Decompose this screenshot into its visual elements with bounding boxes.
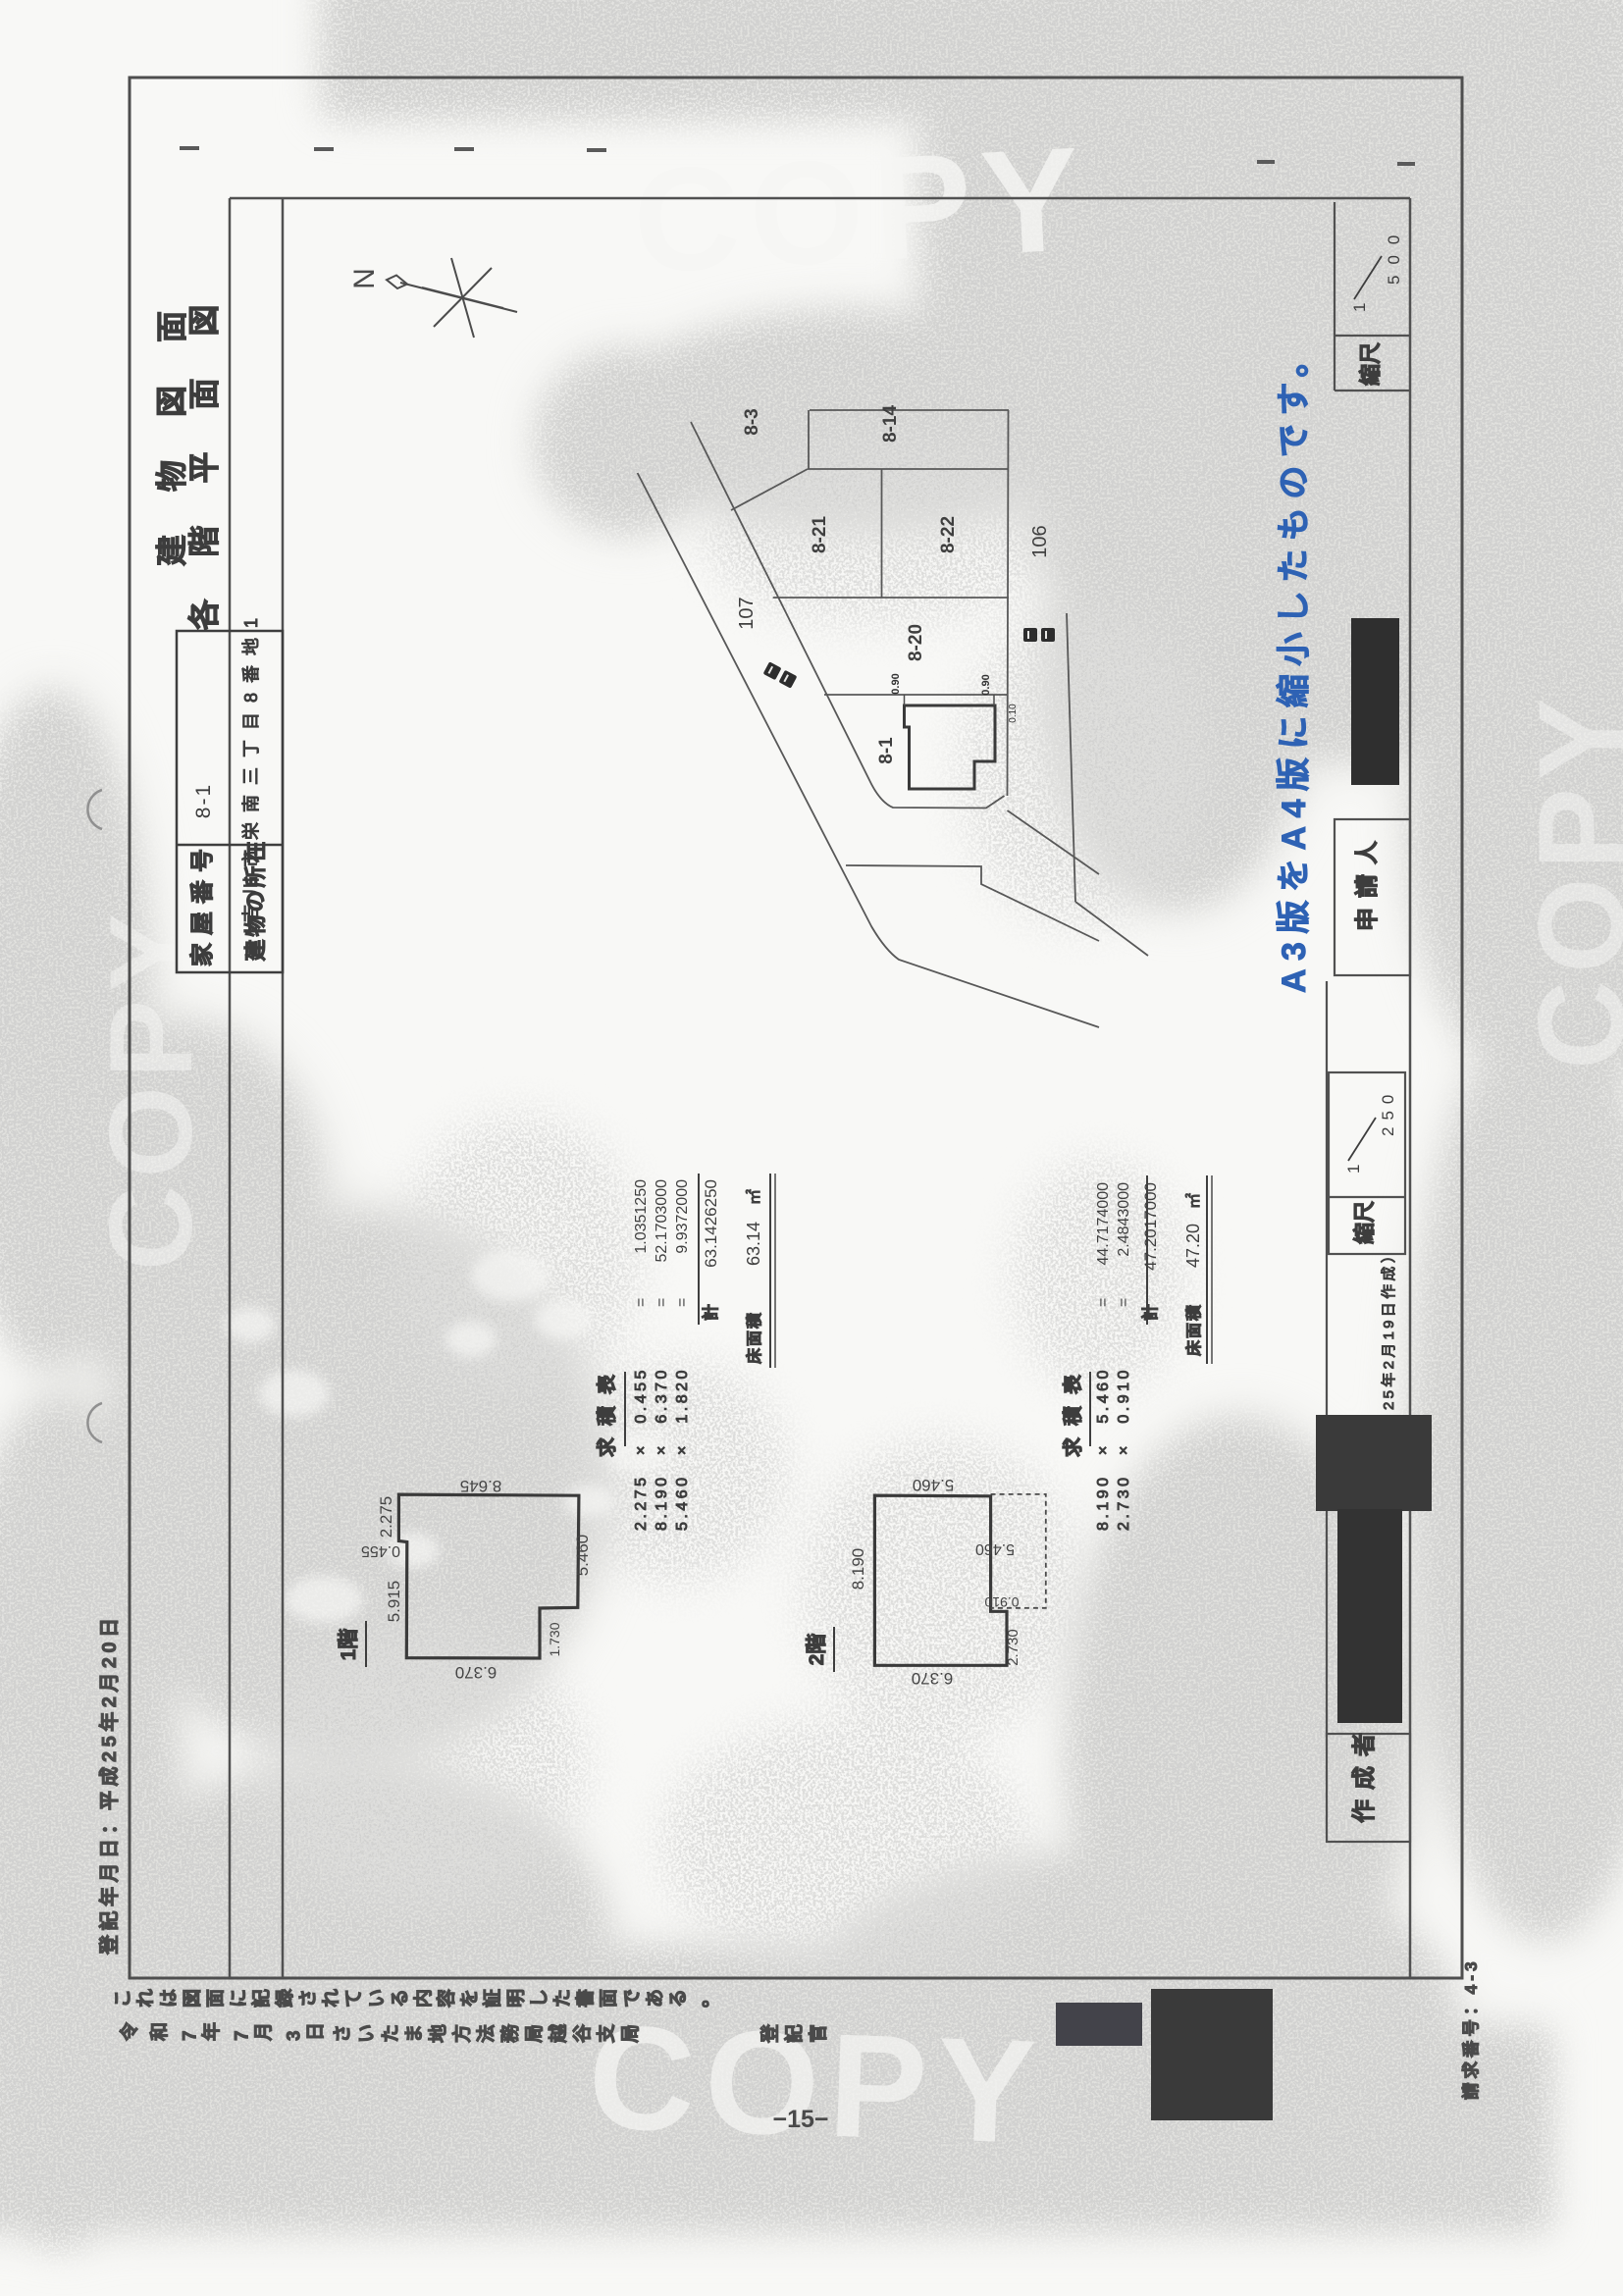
svg-text:2階: 2階 <box>806 1634 828 1666</box>
svg-text:0.90: 0.90 <box>980 674 992 695</box>
svg-text:47.2017000: 47.2017000 <box>1141 1182 1160 1271</box>
svg-text:52.1703000: 52.1703000 <box>654 1179 670 1263</box>
svg-text:−15−: −15− <box>772 2106 828 2133</box>
svg-text:8-21: 8-21 <box>810 516 830 553</box>
svg-text:106: 106 <box>1029 525 1051 557</box>
svg-text:登記官: 登記官 <box>759 2018 829 2044</box>
svg-text:N: N <box>348 268 381 289</box>
svg-text:㎡: ㎡ <box>746 1189 763 1205</box>
svg-text:9.9372000: 9.9372000 <box>674 1179 691 1254</box>
svg-text:8-3: 8-3 <box>742 408 762 435</box>
svg-text:5.460 × 1.820: 5.460 × 1.820 <box>674 1367 691 1531</box>
svg-text:吉川市栄南三丁目8番地1: 吉川市栄南三丁目8番地1 <box>241 608 261 922</box>
svg-text:求積表: 求積表 <box>595 1363 618 1457</box>
svg-text:2.275 × 0.455: 2.275 × 0.455 <box>633 1367 650 1531</box>
svg-text:作成者: 作成者 <box>1350 1723 1378 1823</box>
svg-text:1.730: 1.730 <box>547 1622 562 1656</box>
svg-text:47.20: 47.20 <box>1183 1224 1203 1268</box>
svg-text:家屋番号: 家屋番号 <box>188 841 216 966</box>
svg-text:求積表: 求積表 <box>1061 1363 1084 1457</box>
svg-text:107: 107 <box>736 597 758 629</box>
svg-text:申請人: 申請人 <box>1353 831 1381 931</box>
svg-text:=: = <box>1116 1298 1132 1307</box>
svg-text:=: = <box>1095 1298 1112 1307</box>
svg-text:1階: 1階 <box>338 1629 360 1661</box>
svg-text:建物図面: 建物図面 <box>154 268 189 566</box>
svg-text:63.14: 63.14 <box>744 1222 763 1266</box>
svg-text:床面積: 床面積 <box>1184 1303 1203 1356</box>
svg-text:8.190 × 5.460: 8.190 × 5.460 <box>1095 1367 1112 1531</box>
svg-text:0.10: 0.10 <box>1008 704 1019 723</box>
svg-text:500: 500 <box>1385 225 1403 285</box>
svg-text:6.370: 6.370 <box>912 1669 954 1688</box>
svg-text:請求番号：4-3: 請求番号：4-3 <box>1461 1957 1481 2100</box>
svg-text:各階平面図: 各階平面図 <box>186 262 222 630</box>
svg-text:㎡: ㎡ <box>1185 1193 1203 1209</box>
svg-text:1: 1 <box>1344 1165 1363 1174</box>
svg-text:0.910: 0.910 <box>984 1594 1019 1610</box>
svg-text:COPY: COPY <box>629 115 1093 303</box>
svg-text:44.7174000: 44.7174000 <box>1095 1182 1112 1266</box>
svg-text:=: = <box>633 1298 650 1307</box>
svg-text:5.915: 5.915 <box>385 1581 403 1623</box>
svg-text:8-1: 8-1 <box>192 783 215 818</box>
svg-text:63.1426250: 63.1426250 <box>702 1179 720 1268</box>
svg-text:1.0351250: 1.0351250 <box>633 1179 650 1254</box>
svg-text:8.645: 8.645 <box>460 1477 502 1495</box>
svg-text:2.275: 2.275 <box>377 1496 395 1539</box>
svg-text:床面積: 床面積 <box>745 1311 763 1364</box>
svg-text:250: 250 <box>1379 1088 1397 1136</box>
svg-text:8-20: 8-20 <box>906 624 926 661</box>
svg-text:縮尺: 縮尺 <box>1358 342 1383 386</box>
svg-text:COPY: COPY <box>1514 691 1623 1070</box>
svg-text:1: 1 <box>1350 303 1369 312</box>
svg-text:2.730 × 0.910: 2.730 × 0.910 <box>1116 1367 1132 1531</box>
svg-text:8-22: 8-22 <box>938 516 959 553</box>
svg-text:5.460: 5.460 <box>913 1476 955 1494</box>
svg-text:2.4843000: 2.4843000 <box>1116 1182 1132 1257</box>
svg-text:0.90: 0.90 <box>890 673 902 694</box>
svg-text:0.455: 0.455 <box>361 1542 400 1559</box>
svg-text:6.370: 6.370 <box>455 1663 497 1682</box>
svg-text:=: = <box>654 1298 670 1307</box>
svg-text:8.190 × 6.370: 8.190 × 6.370 <box>654 1367 670 1531</box>
svg-text:登記年月日：平成25年2月20日: 登記年月日：平成25年2月20日 <box>97 1613 121 1956</box>
svg-text:=: = <box>674 1298 691 1307</box>
svg-text:5.460: 5.460 <box>975 1540 1015 1557</box>
svg-text:5.460: 5.460 <box>573 1535 592 1577</box>
svg-text:計: 計 <box>701 1304 720 1321</box>
svg-text:2.730: 2.730 <box>1005 1629 1021 1666</box>
svg-text:25年2月19日作成）: 25年2月19日作成） <box>1381 1245 1397 1410</box>
svg-text:8-1: 8-1 <box>876 737 897 764</box>
svg-text:8.190: 8.190 <box>849 1548 867 1591</box>
svg-text:A3版をA4版に縮小したものです。: A3版をA4版に縮小したものです。 <box>1275 336 1313 993</box>
svg-text:計: 計 <box>1140 1304 1160 1321</box>
svg-text:8-14: 8-14 <box>880 405 901 443</box>
svg-text:縮尺: 縮尺 <box>1352 1201 1377 1244</box>
